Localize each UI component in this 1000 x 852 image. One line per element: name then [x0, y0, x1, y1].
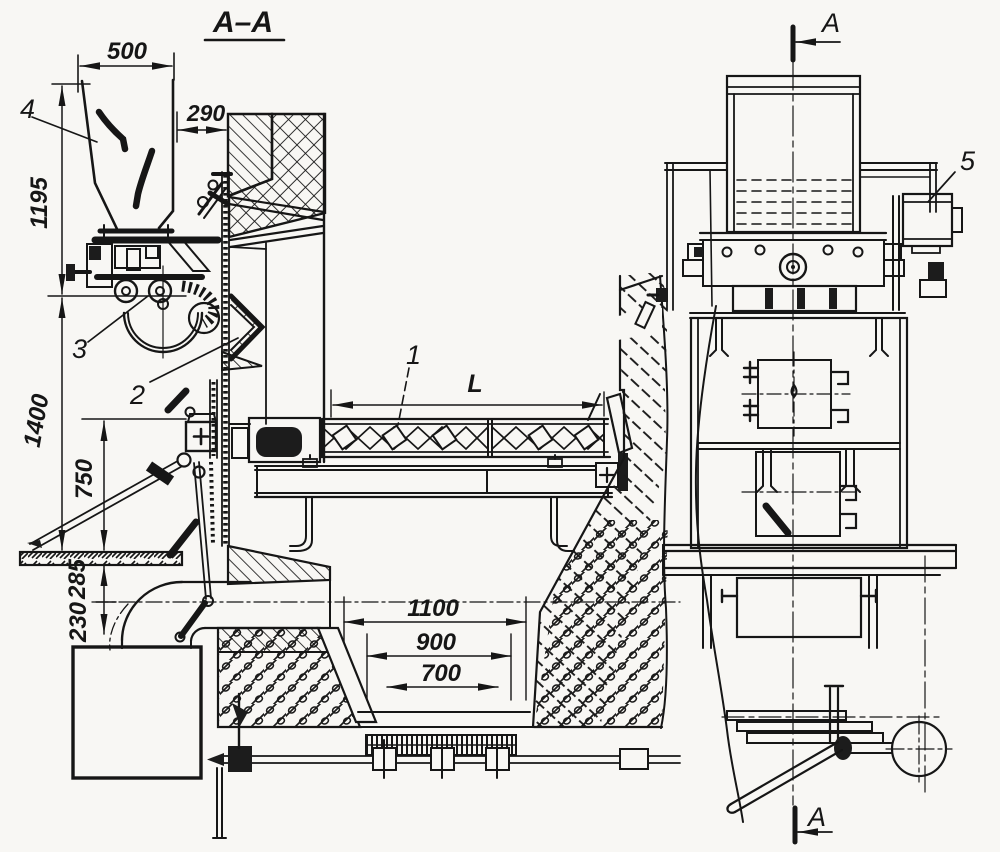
svg-text:1195: 1195 [26, 177, 53, 229]
svg-text:500: 500 [107, 38, 148, 65]
svg-text:1: 1 [406, 340, 421, 370]
svg-text:L: L [467, 370, 482, 398]
svg-text:750: 750 [71, 458, 98, 499]
svg-text:1100: 1100 [407, 595, 459, 622]
svg-text:285: 285 [64, 558, 91, 600]
svg-text:3: 3 [72, 334, 87, 364]
svg-text:A: A [806, 802, 826, 832]
svg-text:A: A [820, 8, 840, 38]
svg-text:4: 4 [20, 94, 35, 124]
svg-text:230: 230 [65, 601, 92, 643]
svg-text:700: 700 [421, 660, 462, 687]
svg-text:900: 900 [416, 629, 457, 656]
svg-text:A–A: A–A [212, 6, 273, 39]
svg-text:2: 2 [129, 380, 145, 410]
svg-text:290: 290 [186, 100, 226, 126]
svg-text:5: 5 [960, 146, 976, 176]
